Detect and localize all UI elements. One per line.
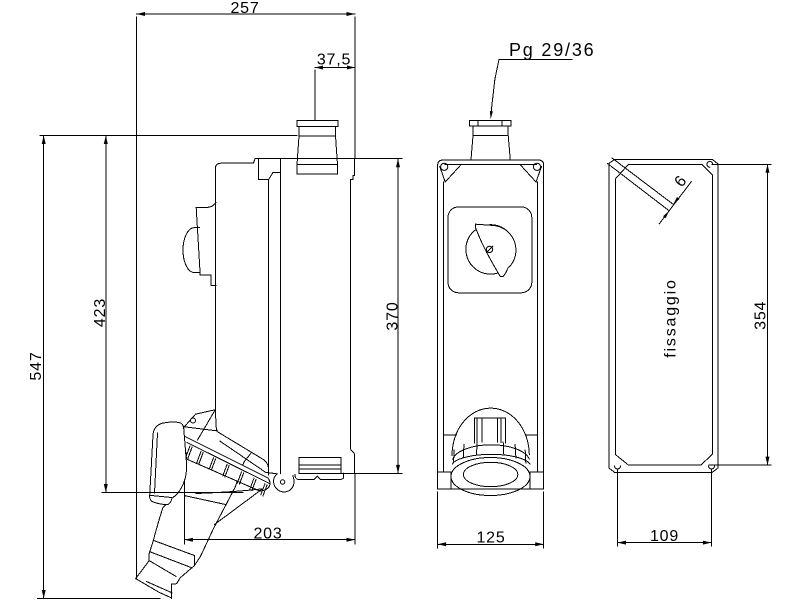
- svg-text:Pg 29/36: Pg 29/36: [509, 40, 595, 60]
- svg-text:fissaggio: fissaggio: [663, 278, 680, 357]
- svg-text:257: 257: [230, 0, 259, 17]
- svg-text:423: 423: [92, 298, 109, 327]
- svg-text:547: 547: [28, 351, 45, 380]
- svg-text:370: 370: [385, 301, 402, 330]
- svg-text:37,5: 37,5: [317, 52, 351, 69]
- svg-text:354: 354: [753, 301, 770, 330]
- svg-text:125: 125: [476, 530, 505, 547]
- svg-text:109: 109: [650, 528, 679, 545]
- svg-text:203: 203: [253, 526, 282, 543]
